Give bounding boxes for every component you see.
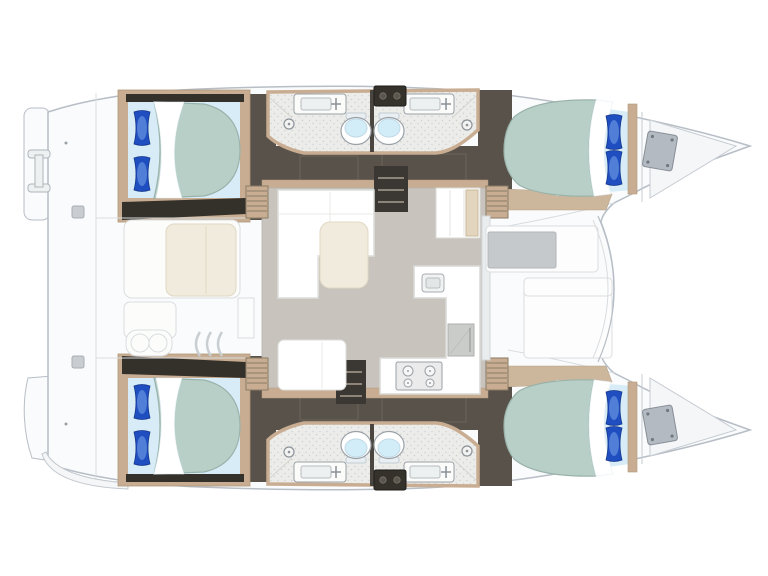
saloon-aft-bench <box>278 340 346 390</box>
cleat <box>72 206 84 218</box>
pillow <box>134 157 150 192</box>
aft-cabin <box>118 90 250 222</box>
bow-hatch <box>642 131 678 172</box>
galley-sink <box>422 274 444 292</box>
deck-fitting <box>65 423 68 426</box>
coffee-table <box>320 222 368 288</box>
four-burner-stove <box>396 362 442 390</box>
top-loading-fridge <box>448 324 474 356</box>
head-board-trim <box>628 104 637 194</box>
cabin-head-band <box>126 94 244 102</box>
washbasin <box>294 94 346 114</box>
bench-cushion <box>166 224 236 296</box>
catamaran-floorplan <box>0 0 768 576</box>
pillow <box>134 111 150 146</box>
mattress <box>504 100 596 196</box>
pillow <box>606 115 622 150</box>
bulkhead-column <box>238 298 254 338</box>
bow-locker <box>642 112 736 202</box>
shower-drain <box>284 119 294 129</box>
cabinet-wood-panel <box>466 190 478 236</box>
saloon <box>246 166 508 404</box>
sun-pad <box>524 278 612 358</box>
gray-seat-pad <box>488 232 556 268</box>
step-locker <box>486 358 508 390</box>
cleat <box>72 356 84 368</box>
floorplan-canvas <box>0 0 768 576</box>
deck-hatch-dark <box>374 86 406 106</box>
bathroom-divider-wall <box>370 90 374 152</box>
port-companionway-stairs <box>374 166 408 212</box>
washbasin <box>404 94 454 114</box>
forward-cockpit-recess <box>486 226 598 272</box>
ladder-rail <box>35 155 43 187</box>
forward-cabinet <box>436 188 480 238</box>
step-locker <box>246 358 268 390</box>
step-locker <box>486 186 508 218</box>
helm-double-seat <box>126 330 172 356</box>
deck-fitting <box>65 142 68 145</box>
bathrooms <box>268 86 478 153</box>
pillow <box>606 151 622 186</box>
step-locker <box>246 186 268 218</box>
shower-drain <box>462 120 472 130</box>
